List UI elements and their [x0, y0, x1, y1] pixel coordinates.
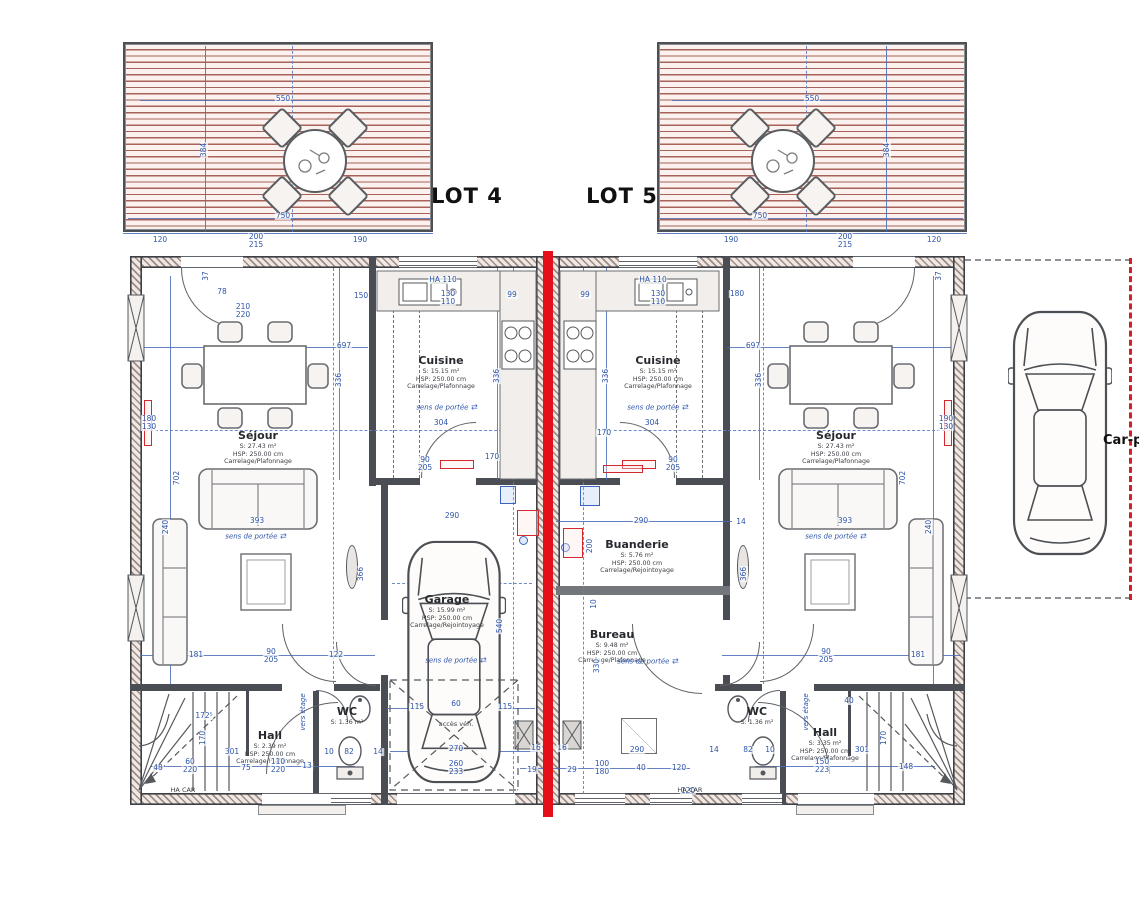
annotation-note: sens de portée ⇄ — [425, 656, 486, 665]
annotation-note: sens de portée ⇄ — [805, 532, 866, 541]
dimension-label: 750 — [275, 212, 291, 220]
direction-arrows-icon: ⇄ — [669, 657, 678, 666]
dimension-label: 115 — [497, 703, 513, 711]
dimension-label: 290 — [629, 746, 645, 754]
dimension-label: 10 — [323, 748, 335, 756]
carport-label: Car-p — [1103, 433, 1139, 448]
room-detail-line: HSP: 250.00 cm — [771, 450, 901, 458]
dimension-label: 210220 — [235, 303, 251, 319]
room-detail-line: HSP: 250.00 cm — [760, 747, 890, 755]
dimension-value: 205 — [418, 464, 432, 472]
dimension-label: 120 — [152, 236, 168, 244]
car-top-view-carport — [1008, 302, 1112, 564]
room-detail-line: S: 9.48 m² — [547, 642, 677, 650]
dimension-label: 301 — [224, 748, 240, 756]
dimension-label: 150223 — [814, 758, 830, 774]
coffee-table-lot5 — [804, 553, 856, 611]
room-name: Séjour — [771, 430, 901, 443]
room-detail-line: S: 27.43 m² — [771, 443, 901, 451]
dimension-value: 110 — [651, 298, 665, 306]
terrace-table-set — [718, 98, 848, 228]
annotation-note: sens de portée ⇄ — [416, 403, 477, 412]
dimension-label: 304 — [644, 419, 660, 427]
dimension-label: 122 — [328, 651, 344, 659]
room-label-garage: GarageS: 15.99 m²HSP: 250.00 cmCarrelage… — [382, 594, 512, 630]
dimension-value: 130 — [939, 423, 953, 431]
dimension-value: 130 — [142, 423, 156, 431]
dimension-label: 180 — [729, 290, 745, 298]
dimension-label: 16 — [556, 744, 568, 752]
dimension-value: 205 — [819, 656, 833, 664]
room-label-sjour: SéjourS: 27.43 m²HSP: 250.00 cmCarrelage… — [771, 430, 901, 466]
dimension-label: 29 — [566, 766, 578, 774]
plumbing-symbol — [580, 486, 600, 506]
dimension-value: 220 — [236, 311, 250, 319]
dimension-label: 148 — [898, 763, 914, 771]
room-detail-line: S: 15.15 m² — [593, 368, 723, 376]
dimension-label: 78 — [216, 288, 228, 296]
dimension-label: 90205 — [818, 648, 834, 664]
dimension-label: 702 — [173, 470, 181, 486]
dimension-label: 190 — [352, 236, 368, 244]
dimension-label: 301 — [854, 746, 870, 754]
dimension-label: 170 — [880, 730, 888, 746]
room-detail-line: Carrelage/Plafonnage — [593, 383, 723, 391]
dimension-label: 170 — [596, 429, 612, 437]
room-detail-line: Carrelage/Plafonnage — [376, 383, 506, 391]
room-name: Hall — [760, 727, 890, 740]
dimension-label: 90205 — [263, 648, 279, 664]
dimension-label: 540 — [496, 618, 504, 634]
dimension-label: 270 — [448, 745, 464, 753]
floor-plan-canvas: LOT 4 LOT 5 Car-p SéjourS: 27.43 m²HSP: … — [0, 0, 1139, 900]
room-label-sjour: SéjourS: 27.43 m²HSP: 250.00 cmCarrelage… — [193, 430, 323, 466]
room-name: Séjour — [193, 430, 323, 443]
dimension-label: 750 — [752, 212, 768, 220]
lot-separation-line — [543, 251, 553, 817]
dimension-label: 115 — [409, 703, 425, 711]
dimension-label: 37 — [202, 270, 210, 282]
dimension-label: 90205 — [417, 456, 433, 472]
dimension-label: 60220 — [182, 758, 198, 774]
dimension-label: 170 — [199, 730, 207, 746]
dimension-label: 82 — [742, 746, 754, 754]
dimension-label: 384 — [200, 142, 208, 158]
room-detail-line: HSP: 250.00 cm — [382, 614, 512, 622]
dimension-label: 290 — [444, 512, 460, 520]
dimension-label: HA 110 — [638, 276, 667, 284]
dimension-label: 336 — [335, 372, 343, 388]
dimension-label: 19 — [526, 766, 538, 774]
dimension-label: 550 — [275, 95, 291, 103]
window-cross-icon — [950, 294, 968, 362]
wall-sofa-lot5 — [908, 518, 944, 666]
annotation-note: sens de portée ⇄ — [225, 532, 286, 541]
dimension-label: 10 — [764, 746, 776, 754]
dimension-label: 75 — [240, 764, 252, 772]
dimension-label: 90205 — [665, 456, 681, 472]
dimension-label: 260233 — [448, 760, 464, 776]
dimension-label: 384 — [883, 142, 891, 158]
dimension-label: 14 — [372, 748, 384, 756]
annotation-note: vers étage — [802, 693, 810, 730]
dimension-label: 190130 — [938, 415, 954, 431]
room-detail-line: S: 3.35 m² — [760, 740, 890, 748]
wall-sofa-lot4 — [152, 518, 188, 666]
radiator — [440, 460, 474, 469]
room-detail-line: Carrelage/Plafonnage — [771, 458, 901, 466]
dimension-label: 40 — [843, 697, 855, 705]
room-name: Hall — [205, 730, 335, 743]
dimension-label: 550 — [804, 95, 820, 103]
dimension-label: 10 — [590, 598, 598, 610]
room-name: Bureau — [547, 629, 677, 642]
dimension-label: 120 — [671, 764, 687, 772]
dimension-label: 37 — [935, 270, 943, 282]
dimension-label: 99 — [579, 291, 591, 299]
dimension-label: 130110 — [440, 290, 456, 306]
radiator — [603, 465, 643, 473]
dimension-label: 130110 — [650, 290, 666, 306]
room-detail-line: S: 15.99 m² — [382, 607, 512, 615]
room-label-cuisine: CuisineS: 15.15 m²HSP: 250.00 cmCarrelag… — [376, 355, 506, 391]
dimension-label: 304 — [433, 419, 449, 427]
dimension-value: 180 — [595, 768, 609, 776]
dimension-value: 215 — [249, 241, 263, 249]
vehicle-access-zone — [388, 678, 538, 804]
dimension-label: 336 — [755, 372, 763, 388]
dimension-label: 366 — [740, 566, 748, 582]
annotation-note: sens de portée ⇄ — [617, 657, 678, 666]
annotation-note: vers étage — [299, 693, 307, 730]
stove-lot5 — [563, 320, 597, 370]
dining-table-set-lot5 — [766, 320, 916, 430]
window-cross-icon — [950, 574, 968, 642]
room-detail-line: HSP: 250.00 cm — [193, 450, 323, 458]
entrance-step-lot4 — [258, 805, 346, 815]
annotation-tag: accès véh. — [439, 720, 474, 728]
dimension-label: 393 — [837, 517, 853, 525]
dimension-label: 181 — [188, 651, 204, 659]
dimension-label: 16 — [530, 744, 542, 752]
dimension-value: 205 — [666, 464, 680, 472]
dimension-label: 697 — [336, 342, 352, 350]
dimension-value: 110 — [441, 298, 455, 306]
dimension-label: 110220 — [270, 758, 286, 774]
dimension-value: 220 — [271, 766, 285, 774]
dimension-label: 336 — [493, 368, 501, 384]
dimension-label: 172⁵ — [194, 712, 213, 720]
annotation-tag: HA CAR — [171, 786, 196, 794]
room-detail-line: Carrelage/Plafonnage — [193, 458, 323, 466]
dimension-value: 220 — [183, 766, 197, 774]
radiator — [517, 510, 539, 536]
dimension-label: 82 — [343, 748, 355, 756]
direction-arrows-icon: ⇄ — [277, 532, 286, 541]
dimension-label: 99 — [506, 291, 518, 299]
annotation-note: sens de portée ⇄ — [627, 403, 688, 412]
dimension-label: 330 — [593, 658, 601, 674]
dimension-label: 100180 — [594, 760, 610, 776]
dimension-label: 120 — [926, 236, 942, 244]
dimension-label: 40 — [635, 764, 647, 772]
window-cross-icon — [127, 294, 145, 362]
dimension-label: 181 — [910, 651, 926, 659]
dimension-label: 13 — [301, 762, 313, 770]
dimension-label: 393 — [249, 517, 265, 525]
dimension-label: 200 — [586, 538, 594, 554]
dimension-label: 14 — [735, 518, 747, 526]
dimension-value: 205 — [264, 656, 278, 664]
room-detail-line: S: 15.15 m² — [376, 368, 506, 376]
stove-lot4 — [501, 320, 535, 370]
dimension-label: 200215 — [248, 233, 264, 249]
lot4-title: LOT 4 — [431, 184, 503, 208]
dimension-label: 366 — [357, 566, 365, 582]
dimension-label: 336 — [602, 368, 610, 384]
direction-arrows-icon: ⇄ — [679, 403, 688, 412]
dimension-label: 180130 — [141, 415, 157, 431]
room-name: Cuisine — [593, 355, 723, 368]
room-detail-line: S: 27.43 m² — [193, 443, 323, 451]
lot5-title: LOT 5 — [586, 184, 658, 208]
room-detail-line: HSP: 250.00 cm — [593, 375, 723, 383]
dimension-label: 170 — [484, 453, 500, 461]
window-cross-icon — [127, 574, 145, 642]
dimension-label: 200215 — [837, 233, 853, 249]
room-detail-line: HSP: 250.00 cm — [376, 375, 506, 383]
room-label-cuisine: CuisineS: 15.15 m²HSP: 250.00 cmCarrelag… — [593, 355, 723, 391]
room-detail-line: Carrelage/Rejointoyage — [382, 622, 512, 630]
annotation-tag: HA CAR — [678, 786, 703, 794]
dimension-value: 233 — [449, 768, 463, 776]
dimension-label: 14 — [708, 746, 720, 754]
dining-table-set-lot4 — [180, 320, 330, 430]
entrance-step-lot5 — [796, 805, 874, 815]
dimension-label: 240 — [162, 519, 170, 535]
dimension-label: 48 — [152, 764, 164, 772]
room-detail-line: HSP: 250.00 cm — [572, 559, 702, 567]
room-detail-line: Carrelage/Rejointoyage — [572, 567, 702, 575]
kitchen-counter-side-lot5 — [559, 270, 597, 480]
dimension-label: 60 — [450, 700, 462, 708]
coffee-table-lot4 — [240, 553, 292, 611]
room-name: Cuisine — [376, 355, 506, 368]
dimension-label: 702 — [899, 470, 907, 486]
dimension-label: 240 — [925, 519, 933, 535]
toilet-lot4 — [335, 735, 365, 781]
dimension-value: 223 — [815, 766, 829, 774]
plumbing-symbol — [500, 486, 516, 504]
terrace-table-set — [250, 98, 380, 228]
dimension-label: 190 — [723, 236, 739, 244]
dimension-label: 697 — [745, 342, 761, 350]
direction-arrows-icon: ⇄ — [857, 532, 866, 541]
direction-arrows-icon: ⇄ — [477, 656, 486, 665]
dimension-label: 150 — [353, 292, 369, 300]
room-name: Garage — [382, 594, 512, 607]
plumbing-symbol — [519, 536, 528, 545]
dimension-label: HA 110 — [428, 276, 457, 284]
dimension-label: 290 — [633, 517, 649, 525]
direction-arrows-icon: ⇄ — [468, 403, 477, 412]
dimension-value: 215 — [838, 241, 852, 249]
